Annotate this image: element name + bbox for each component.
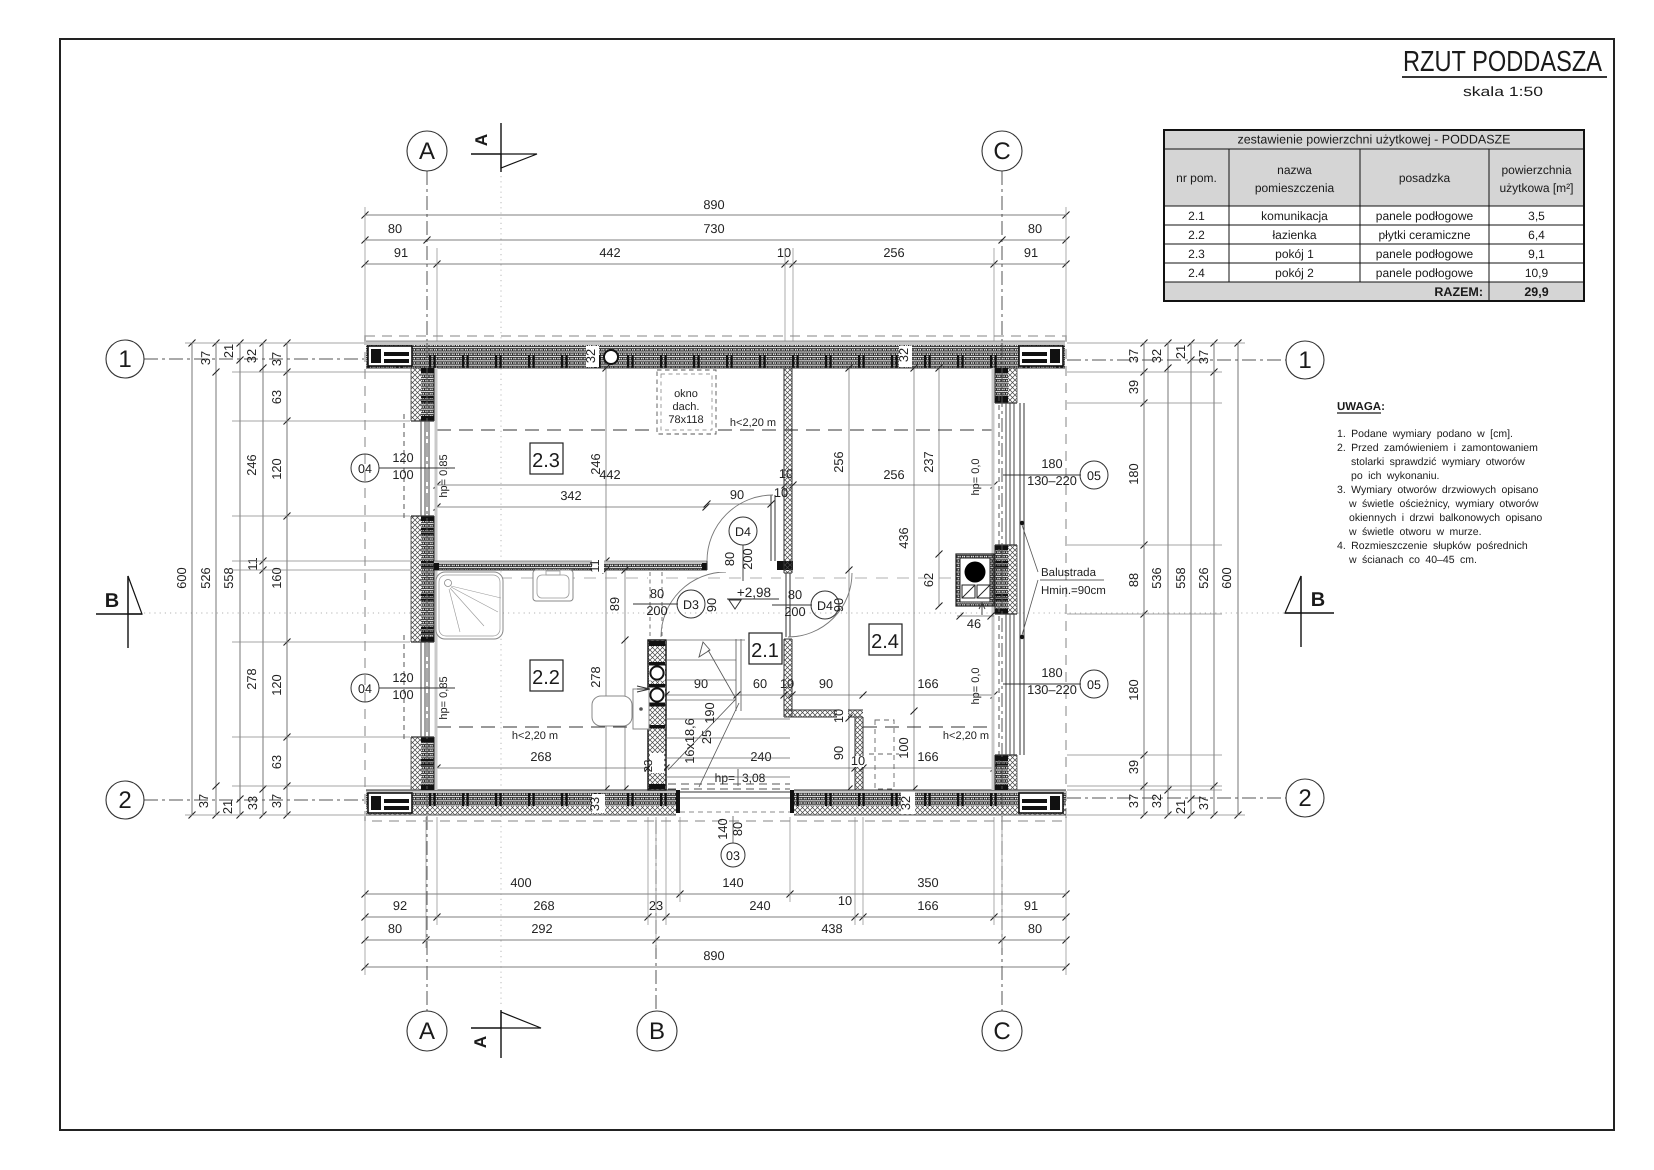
svg-text:91: 91 [1024,898,1038,913]
svg-text:1: 1 [1298,347,1311,374]
svg-text:90: 90 [831,746,846,760]
svg-text:A: A [419,138,435,165]
svg-text:180: 180 [1126,679,1141,700]
svg-text:60: 60 [753,676,767,691]
svg-text:536: 536 [1149,567,1164,588]
svg-text:3,5: 3,5 [1528,209,1545,223]
svg-text:80: 80 [1028,921,1042,936]
svg-text:D3: D3 [683,598,699,612]
svg-text:2. Przed zamówieniem i zamonto: 2. Przed zamówieniem i zamontowaniem [1337,442,1538,454]
svg-text:180: 180 [1126,463,1141,484]
svg-text:Balustrada: Balustrada [1041,567,1097,579]
svg-text:33: 33 [245,796,260,810]
svg-text:panele podłogowe: panele podłogowe [1376,247,1474,261]
svg-text:37: 37 [198,351,213,365]
svg-text:stolarki sprawdzić wymiary otw: stolarki sprawdzić wymiary otworów [1351,456,1525,468]
svg-text:32: 32 [244,349,259,363]
svg-text:90: 90 [730,487,744,502]
svg-text:32: 32 [898,796,913,810]
svg-text:zestawienie powierzchni użytko: zestawienie powierzchni użytkowej - PODD… [1237,133,1510,147]
svg-text:400: 400 [510,875,531,890]
svg-text:posadzka: posadzka [1399,171,1451,185]
svg-text:292: 292 [531,921,552,936]
svg-text:10,9: 10,9 [1525,266,1549,280]
svg-text:600: 600 [174,567,189,588]
svg-text:32: 32 [1149,794,1164,808]
svg-text:05: 05 [1087,469,1101,483]
svg-text:90: 90 [694,676,708,691]
svg-text:120: 120 [269,458,284,479]
svg-text:268: 268 [530,749,551,764]
svg-text:91: 91 [1024,245,1038,260]
svg-text:B: B [1311,589,1325,611]
svg-text:80: 80 [388,921,402,936]
svg-text:37: 37 [1196,350,1211,364]
svg-text:16x18,6: 16x18,6 [682,718,697,764]
svg-text:płytki ceramiczne: płytki ceramiczne [1378,228,1470,242]
svg-text:32: 32 [583,349,598,363]
svg-text:80: 80 [1028,221,1042,236]
svg-text:80: 80 [722,552,737,566]
svg-text:436: 436 [896,527,911,548]
svg-text:2.4: 2.4 [1188,266,1205,280]
svg-text:RAZEM:: RAZEM: [1434,285,1483,299]
svg-text:180: 180 [1041,665,1062,680]
svg-text:91: 91 [394,245,408,260]
svg-text:11: 11 [245,557,260,570]
svg-text:130–220: 130–220 [1027,473,1077,488]
svg-text:4. Rozmieszczenie słupków pośr: 4. Rozmieszczenie słupków pośrednich [1337,540,1528,552]
svg-text:80: 80 [388,221,402,236]
svg-text:B: B [105,590,119,612]
svg-text:25: 25 [699,730,714,744]
svg-text:558: 558 [1173,567,1188,588]
svg-text:39: 39 [1126,380,1141,394]
svg-text:RZUT PODDASZA: RZUT PODDASZA [1403,46,1603,78]
svg-text:h<2,20 m: h<2,20 m [512,730,558,742]
svg-text:2.3: 2.3 [1188,247,1205,261]
svg-text:2.3: 2.3 [532,450,560,472]
svg-text:04: 04 [358,462,372,476]
svg-text:100: 100 [392,467,413,482]
svg-text:10: 10 [831,709,846,723]
svg-text:04: 04 [358,682,372,696]
svg-text:dach.: dach. [673,401,700,413]
svg-text:89: 89 [607,597,622,611]
svg-text:342: 342 [560,488,581,503]
svg-text:2.2: 2.2 [1188,228,1205,242]
svg-text:200: 200 [784,604,805,619]
svg-text:skala 1:50: skala 1:50 [1463,84,1543,99]
svg-text:730: 730 [703,221,724,236]
svg-text:2.4: 2.4 [871,631,899,653]
svg-text:10: 10 [774,485,788,500]
svg-text:2.2: 2.2 [532,667,560,689]
svg-text:120: 120 [269,674,284,695]
svg-text:32: 32 [896,348,911,362]
svg-text:160: 160 [269,567,284,588]
svg-text:46: 46 [967,616,981,631]
svg-text:166: 166 [917,749,938,764]
svg-text:3. Wymiary otworów drzwiowych: 3. Wymiary otworów drzwiowych opisano [1337,484,1538,496]
svg-text:90: 90 [831,598,846,612]
svg-text:komunikacja: komunikacja [1261,209,1328,223]
svg-text:90: 90 [704,598,719,612]
svg-text:246: 246 [244,454,259,475]
svg-text:okiennych i drzwi balkonowych: okiennych i drzwi balkonowych opisano [1349,512,1542,524]
svg-text:29,9: 29,9 [1524,285,1548,299]
svg-text:120: 120 [392,450,413,465]
svg-text:350: 350 [917,875,938,890]
svg-text:03: 03 [726,849,740,863]
svg-text:256: 256 [883,467,904,482]
svg-text:Hmin.=90cm: Hmin.=90cm [1041,585,1106,597]
svg-text:80: 80 [788,587,802,602]
svg-text:łazienka: łazienka [1272,228,1316,242]
svg-text:90: 90 [819,676,833,691]
svg-text:2: 2 [118,787,131,814]
svg-text:pomieszczenia: pomieszczenia [1255,181,1335,195]
svg-text:37: 37 [1196,796,1211,810]
svg-text:92: 92 [393,898,407,913]
svg-text:21: 21 [1173,800,1188,814]
svg-text:39: 39 [1126,760,1141,774]
svg-text:C: C [993,1018,1010,1045]
svg-text:powierzchnia: powierzchnia [1501,163,1571,177]
svg-text:100: 100 [896,737,911,758]
svg-text:21: 21 [1173,345,1188,359]
svg-text:37: 37 [1126,349,1141,363]
svg-text:23: 23 [643,760,655,773]
svg-text:140: 140 [715,818,730,839]
svg-text:120: 120 [392,670,413,685]
svg-text:6,4: 6,4 [1528,228,1545,242]
svg-text:05: 05 [1087,678,1101,692]
svg-text:180: 180 [1041,456,1062,471]
svg-text:użytkowa [m²]: użytkowa [m²] [1499,181,1573,195]
svg-text:9,1: 9,1 [1528,247,1545,261]
svg-text:32: 32 [1149,349,1164,363]
svg-text:2: 2 [1298,785,1311,812]
svg-text:130–220: 130–220 [1027,682,1077,697]
svg-text:po ich wykonaniu.: po ich wykonaniu. [1351,470,1439,482]
svg-text:C: C [993,138,1010,165]
svg-text:w świetle otworu w murze.: w świetle otworu w murze. [1348,526,1482,538]
svg-text:10: 10 [851,753,865,768]
svg-text:62: 62 [921,573,936,587]
svg-text:+2,98: +2,98 [737,585,771,600]
svg-text:A: A [419,1018,435,1045]
svg-text:11: 11 [587,559,602,572]
svg-text:256: 256 [831,451,846,472]
svg-text:237: 237 [921,451,936,472]
svg-text:3,08: 3,08 [742,771,766,785]
svg-text:268: 268 [533,898,554,913]
svg-text:10: 10 [838,893,852,908]
svg-text:442: 442 [599,245,620,260]
svg-text:h<2,20 m: h<2,20 m [730,417,776,429]
svg-text:140: 140 [722,875,743,890]
svg-text:526: 526 [198,567,213,588]
svg-text:panele podłogowe: panele podłogowe [1376,266,1474,280]
svg-text:37: 37 [196,794,211,808]
svg-text:nr pom.: nr pom. [1176,171,1217,185]
svg-text:80: 80 [650,586,664,601]
svg-text:hp= 0,85: hp= 0,85 [438,454,450,497]
svg-text:21: 21 [221,344,236,358]
svg-text:890: 890 [703,948,724,963]
svg-text:pokój 1: pokój 1 [1275,247,1314,261]
svg-text:438: 438 [821,921,842,936]
svg-text:B: B [649,1018,665,1045]
svg-text:w świetle ościeżnicy, wymiary: w świetle ościeżnicy, wymiary otworów [1348,498,1539,510]
svg-text:D4: D4 [735,525,751,539]
svg-text:278: 278 [244,668,259,689]
svg-text:80: 80 [730,822,745,836]
svg-text:200: 200 [740,548,755,569]
svg-text:1: 1 [118,346,131,373]
svg-text:panele podłogowe: panele podłogowe [1376,209,1474,223]
svg-text:33: 33 [587,797,602,811]
svg-text:37: 37 [269,794,284,808]
svg-text:200: 200 [646,603,667,618]
svg-text:37: 37 [269,352,284,366]
svg-text:890: 890 [703,197,724,212]
svg-text:21: 21 [220,800,235,814]
svg-text:256: 256 [883,245,904,260]
svg-text:37: 37 [1126,794,1141,808]
svg-text:166: 166 [917,898,938,913]
svg-text:166: 166 [917,676,938,691]
svg-text:558: 558 [221,567,236,588]
svg-text:hp= 0,85: hp= 0,85 [438,676,450,719]
svg-text:63: 63 [269,390,284,404]
svg-text:240: 240 [750,749,771,764]
svg-text:w ścianach co 40–45 cm.: w ścianach co 40–45 cm. [1348,554,1477,566]
svg-text:88: 88 [1126,573,1141,587]
svg-text:A: A [471,1036,490,1048]
svg-text:okno: okno [674,388,698,400]
svg-text:10: 10 [777,245,791,260]
svg-text:2.1: 2.1 [751,640,779,662]
svg-text:2.1: 2.1 [1188,209,1205,223]
svg-text:hp= 0,0: hp= 0,0 [970,458,982,495]
svg-text:78x118: 78x118 [668,414,703,426]
svg-text:63: 63 [269,755,284,769]
svg-text:526: 526 [1196,567,1211,588]
svg-text:h<2,20 m: h<2,20 m [943,730,989,742]
svg-text:hp=: hp= [715,771,735,785]
svg-text:pokój 2: pokój 2 [1275,266,1314,280]
svg-text:600: 600 [1219,567,1234,588]
svg-text:hp= 0,0: hp= 0,0 [970,667,982,704]
svg-text:246: 246 [588,453,603,474]
svg-text:190: 190 [702,702,717,723]
svg-text:A: A [472,134,491,146]
svg-text:100: 100 [392,687,413,702]
svg-text:240: 240 [749,898,770,913]
svg-text:278: 278 [588,666,603,687]
svg-text:1. Podane wymiary podano w [cm: 1. Podane wymiary podano w [cm]. [1337,428,1513,440]
svg-text:UWAGA:: UWAGA: [1337,401,1385,413]
svg-text:nazwa: nazwa [1277,163,1312,177]
